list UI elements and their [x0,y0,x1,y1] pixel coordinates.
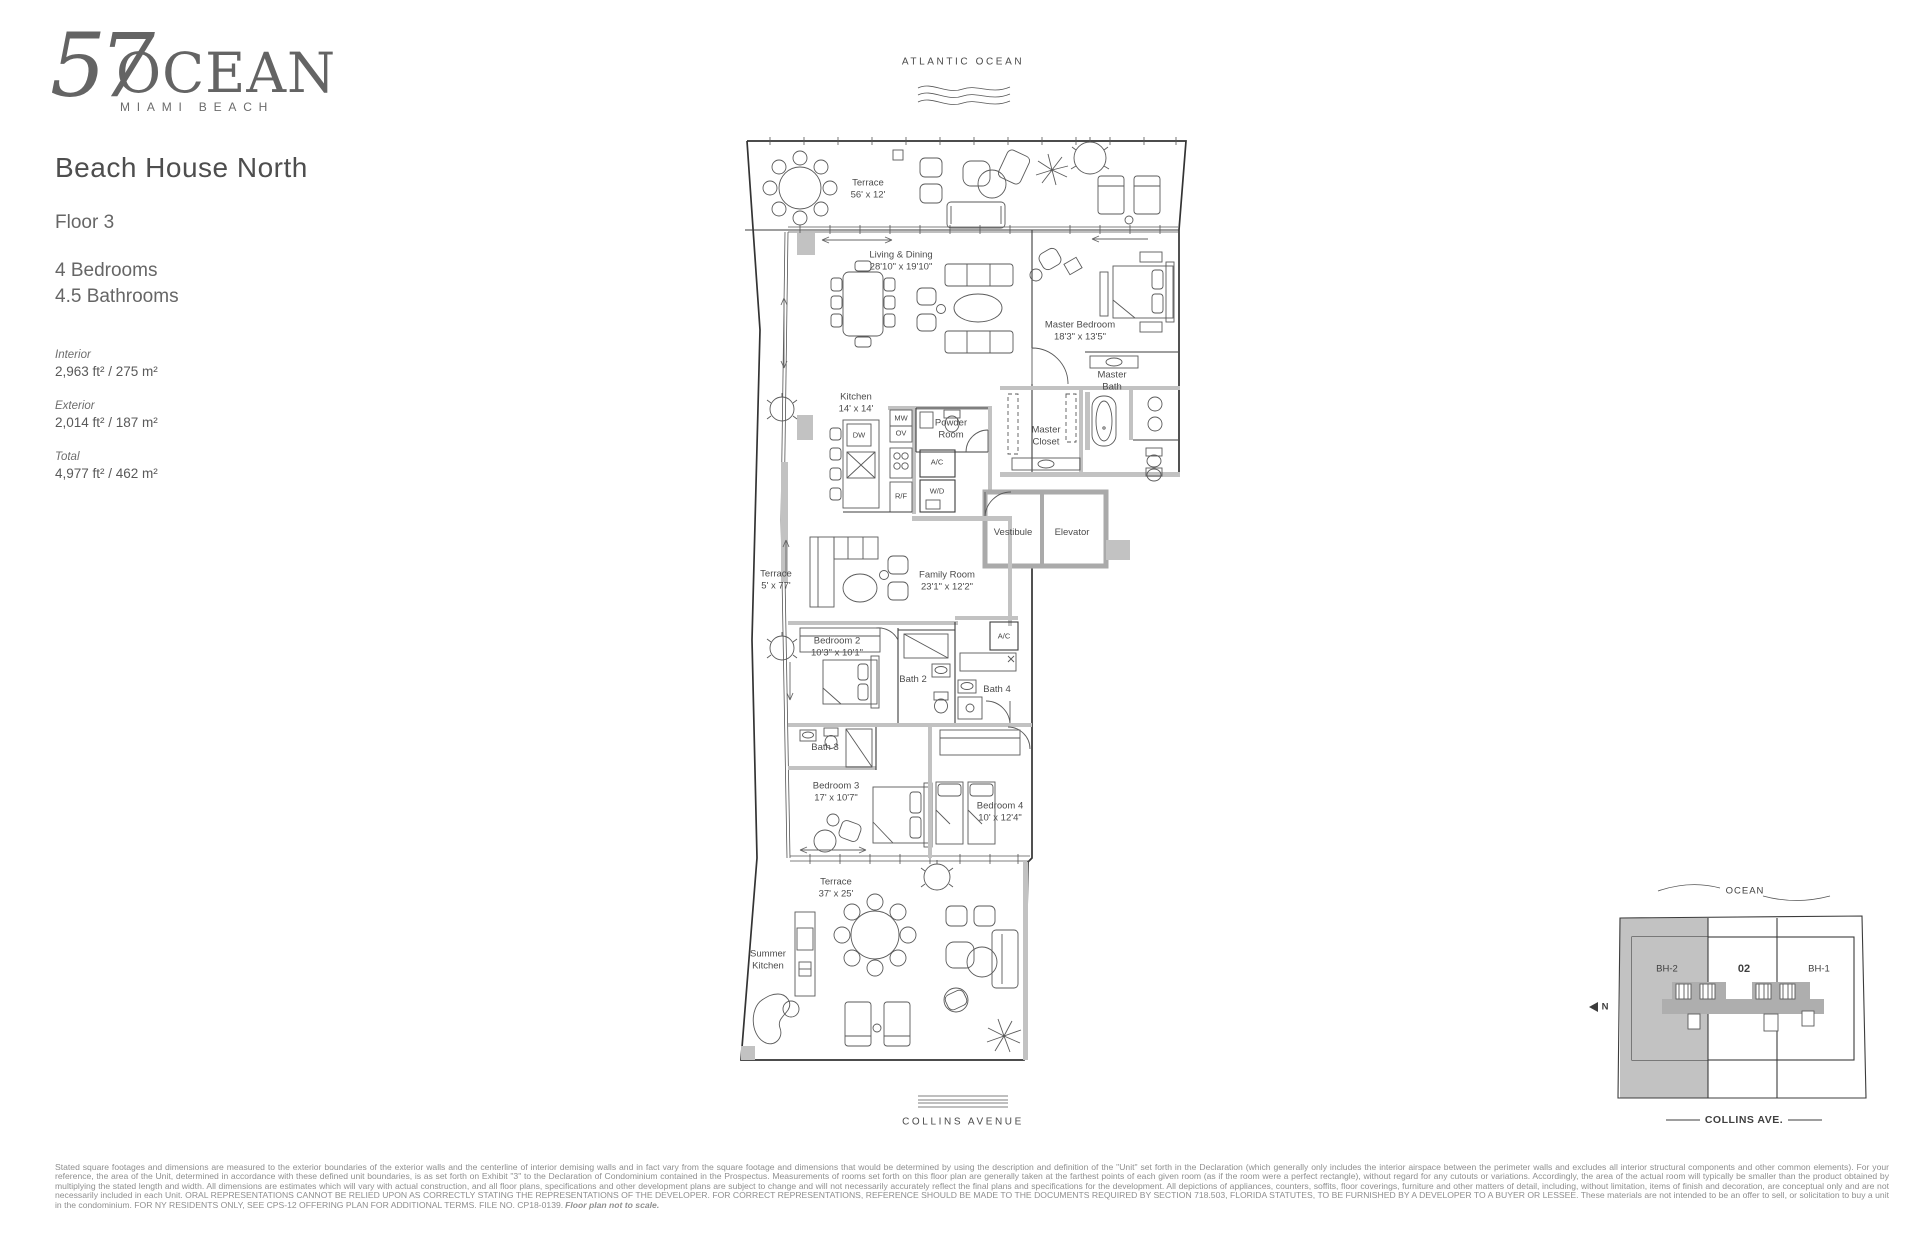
room-label-bedroom-3: Bedroom 317' x 10'7" [813,781,859,806]
top-terrace [763,137,1160,228]
bathroom-count: 4.5 Bathrooms [55,286,179,308]
not-to-scale-note: Floor plan not to scale. [565,1200,659,1210]
area-exterior: Exterior 2,014 ft² / 187 m² [55,400,158,430]
sitemap-collins-ave-label: COLLINS AVE. [1705,1114,1783,1126]
bedroom-count: 4 Bedrooms [55,260,157,282]
floor-number: Floor 3 [55,212,114,234]
kitchen [830,406,992,516]
ocean-waves-icon [918,86,1010,105]
appliance-label-ac: A/C [931,458,944,467]
area-interior: Interior 2,963 ft² / 275 m² [55,349,158,379]
legal-disclaimer: Stated square footages and dimensions ar… [55,1163,1889,1211]
room-label-kitchen: Kitchen14' x 14' [839,392,874,417]
room-label-terrace-south: Terrace37' x 25' [819,877,854,902]
area-value: 4,977 ft² / 462 m² [55,466,158,481]
room-label-bath-2: Bath 2 [899,674,926,686]
room-label-terrace-north: Terrace56' x 12' [851,178,886,203]
floorplan-drawing [0,0,1920,1242]
sitemap-unit-bh2-label: BH-2 [1656,964,1678,975]
collins-avenue-label: COLLINS AVENUE [902,1117,1024,1128]
room-label-terrace-west: Terrace5' x 77' [760,569,792,594]
palm-tree-icon [1036,154,1068,185]
brand-logo: 57 OCEAN MIAMI BEACH [50,38,310,128]
bottom-terrace [753,894,1021,1052]
area-total: Total 4,977 ft² / 462 m² [55,451,158,481]
room-label-bath-4: Bath 4 [983,684,1010,696]
appliance-label-ov: OV [896,429,907,438]
logo-word: OCEAN [116,46,336,101]
bedroom-4 [928,727,1030,858]
logo-tagline: MIAMI BEACH [120,100,274,114]
north-arrow-label: N [1602,1002,1609,1013]
area-label: Interior [55,349,158,361]
sitemap-unit-02-label: 02 [1738,963,1750,975]
appliance-label-mw: MW [894,414,907,423]
room-label-master-bath: MasterBath [1097,370,1126,395]
appliance-label-dw: DW [853,431,866,440]
exterior-walls [741,137,1186,1060]
appliance-label-ac-2: A/C [998,632,1011,641]
appliance-label-rf: R/F [895,492,907,501]
room-label-summer-kitchen: SummerKitchen [750,949,786,974]
sitemap-unit-bh1-label: BH-1 [1808,964,1830,975]
floorplan-sheet: { "logo": { "number": "57", "word": "OCE… [0,0,1920,1242]
room-label-bedroom-2: Bedroom 210'3" x 10'1" [811,636,863,661]
area-label: Total [55,451,158,463]
atlantic-ocean-label: ATLANTIC OCEAN [902,57,1024,68]
room-label-bath-3: Bath 3 [811,742,838,754]
area-label: Exterior [55,400,158,412]
unit-name: Beach House North [55,152,308,184]
room-label-living-dining: Living & Dining28'10" x 19'10" [869,250,932,275]
palm-tree-icon [987,1019,1021,1052]
room-label-powder-room: PowderRoom [935,418,967,443]
site-map [1589,885,1866,1120]
room-label-vestibule: Vestibule [994,527,1033,539]
room-label-master-closet: MasterCloset [1031,425,1060,450]
sitemap-ocean-label: OCEAN [1726,886,1765,897]
room-label-bedroom-4: Bedroom 410' x 12'4" [977,801,1023,826]
room-label-master-bedroom: Master Bedroom18'3" x 13'5" [1045,320,1115,345]
area-value: 2,014 ft² / 187 m² [55,415,158,430]
appliance-label-wd: W/D [930,487,945,496]
road-icon [918,1096,1008,1107]
area-value: 2,963 ft² / 275 m² [55,364,158,379]
master-suite [1000,230,1180,481]
room-label-elevator: Elevator [1055,527,1090,539]
room-label-family-room: Family Room23'1" x 12'2" [919,570,975,595]
